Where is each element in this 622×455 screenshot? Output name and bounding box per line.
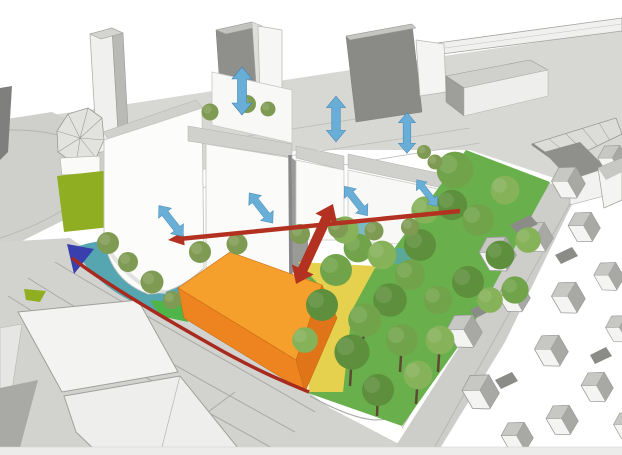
tree [437, 152, 474, 189]
roof-tree [417, 145, 431, 159]
roof-tree [202, 104, 219, 121]
massing-diagram [0, 0, 622, 455]
dark-slab [346, 24, 422, 122]
tree [515, 227, 541, 253]
tree [141, 271, 164, 294]
tree [404, 361, 433, 390]
tree [395, 260, 425, 290]
massing-diagram-canvas [0, 0, 622, 455]
page-edge-strip [0, 447, 622, 455]
tree [424, 286, 453, 315]
tree [486, 241, 515, 270]
tree [368, 241, 397, 270]
tree [189, 241, 211, 263]
tree [365, 222, 384, 241]
tree [320, 254, 352, 286]
tree [306, 289, 338, 321]
tree [163, 291, 181, 309]
tree [362, 374, 394, 406]
tree [477, 287, 503, 313]
roof-tree [261, 102, 276, 117]
roof-tree [428, 155, 443, 170]
tree [386, 324, 418, 356]
tree [501, 276, 528, 303]
tree [334, 334, 369, 369]
tree [227, 234, 248, 255]
middle-building-face [206, 144, 292, 275]
tree [491, 176, 520, 205]
tree [348, 303, 382, 337]
white-slab-right [416, 40, 446, 96]
tree [462, 204, 494, 236]
tree [118, 252, 138, 272]
tree [97, 232, 119, 254]
tree [292, 327, 318, 353]
lamp-pole [290, 155, 291, 290]
tree [401, 218, 419, 236]
tree [426, 326, 455, 355]
